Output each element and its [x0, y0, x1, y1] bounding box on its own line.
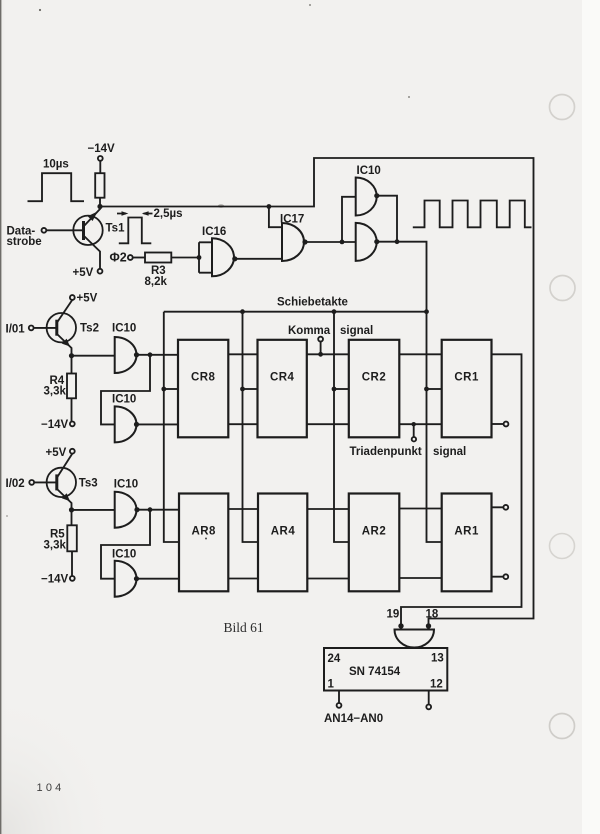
svg-text:R5: R5 — [50, 528, 65, 540]
svg-text:AR8: AR8 — [191, 526, 216, 538]
svg-text:19: 19 — [387, 609, 400, 621]
svg-text:IC10: IC10 — [112, 323, 136, 335]
svg-text:IC10: IC10 — [112, 393, 136, 405]
svg-text:8,2k: 8,2k — [145, 276, 168, 288]
svg-text:I/02: I/02 — [6, 478, 25, 490]
svg-text:13: 13 — [431, 653, 444, 665]
svg-text:IC17: IC17 — [280, 214, 304, 226]
svg-text:AR1: AR1 — [454, 526, 479, 538]
svg-text:24: 24 — [328, 653, 341, 665]
svg-text:AR2: AR2 — [362, 526, 387, 538]
svg-text:2,5µs: 2,5µs — [154, 208, 183, 220]
svg-text:SN 74154: SN 74154 — [349, 666, 401, 678]
svg-text:AR4: AR4 — [271, 526, 296, 538]
svg-text:CR8: CR8 — [191, 372, 216, 384]
svg-text:1: 1 — [328, 679, 335, 691]
svg-text:signal: signal — [340, 325, 373, 337]
svg-text:Triadenpunkt: Triadenpunkt — [350, 446, 422, 458]
svg-text:−14V: −14V — [41, 574, 69, 586]
svg-text:Komma: Komma — [288, 325, 331, 337]
svg-text:Schiebetakte: Schiebetakte — [277, 297, 348, 309]
svg-text:IC10: IC10 — [357, 165, 381, 177]
svg-text:I/01: I/01 — [6, 324, 26, 336]
svg-text:18: 18 — [426, 609, 439, 621]
svg-text:AN14−AN0: AN14−AN0 — [324, 713, 383, 725]
svg-text:CR4: CR4 — [270, 372, 295, 384]
svg-text:+5V: +5V — [77, 293, 98, 305]
svg-text:Ts1: Ts1 — [106, 223, 126, 235]
svg-text:CR1: CR1 — [454, 372, 479, 384]
svg-text:−14V: −14V — [41, 419, 69, 431]
svg-text:IC10: IC10 — [114, 478, 138, 490]
svg-text:3,3k: 3,3k — [44, 540, 67, 552]
svg-text:10µs: 10µs — [43, 159, 69, 171]
svg-text:Ts3: Ts3 — [79, 478, 98, 490]
svg-text:strobe: strobe — [7, 236, 42, 248]
svg-text:IC16: IC16 — [202, 226, 226, 238]
svg-text:Φ2: Φ2 — [110, 250, 127, 264]
svg-text:−14V: −14V — [88, 143, 116, 155]
svg-text:CR2: CR2 — [362, 372, 387, 384]
svg-text:Ts2: Ts2 — [80, 323, 99, 335]
svg-text:3,3k: 3,3k — [44, 386, 67, 398]
svg-text:signal: signal — [433, 446, 466, 458]
svg-text:12: 12 — [430, 679, 443, 691]
svg-text:104: 104 — [37, 782, 65, 794]
svg-text:IC10: IC10 — [112, 549, 136, 561]
svg-text:Bild 61: Bild 61 — [224, 620, 264, 635]
svg-text:+5V: +5V — [73, 267, 94, 279]
svg-text:+5V: +5V — [46, 447, 67, 459]
